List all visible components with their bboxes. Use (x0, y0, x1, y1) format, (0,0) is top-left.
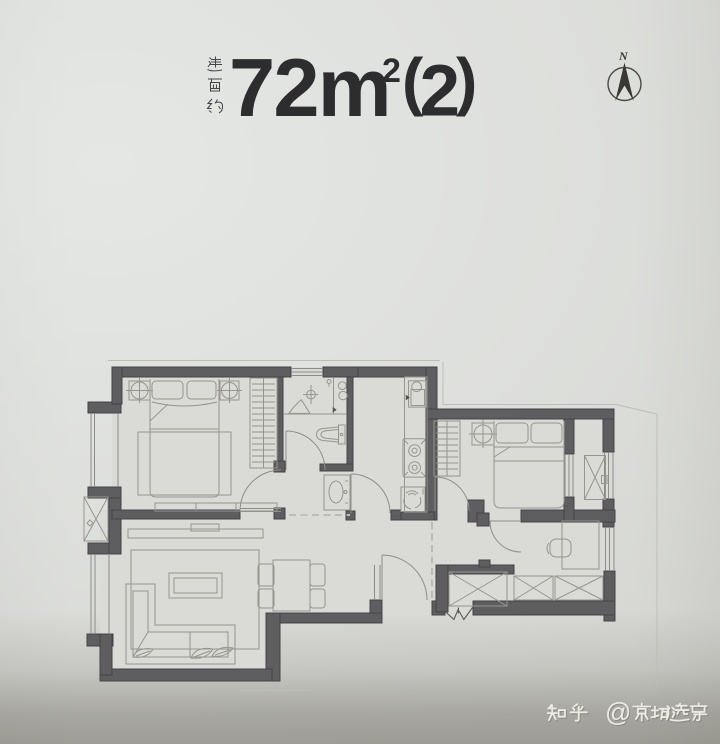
svg-text:): ) (456, 45, 477, 117)
svg-text:N: N (618, 49, 629, 63)
svg-text:@: @ (605, 697, 631, 727)
svg-text:2: 2 (420, 51, 461, 132)
svg-text:2: 2 (382, 52, 401, 90)
svg-text:72m: 72m (229, 41, 390, 134)
